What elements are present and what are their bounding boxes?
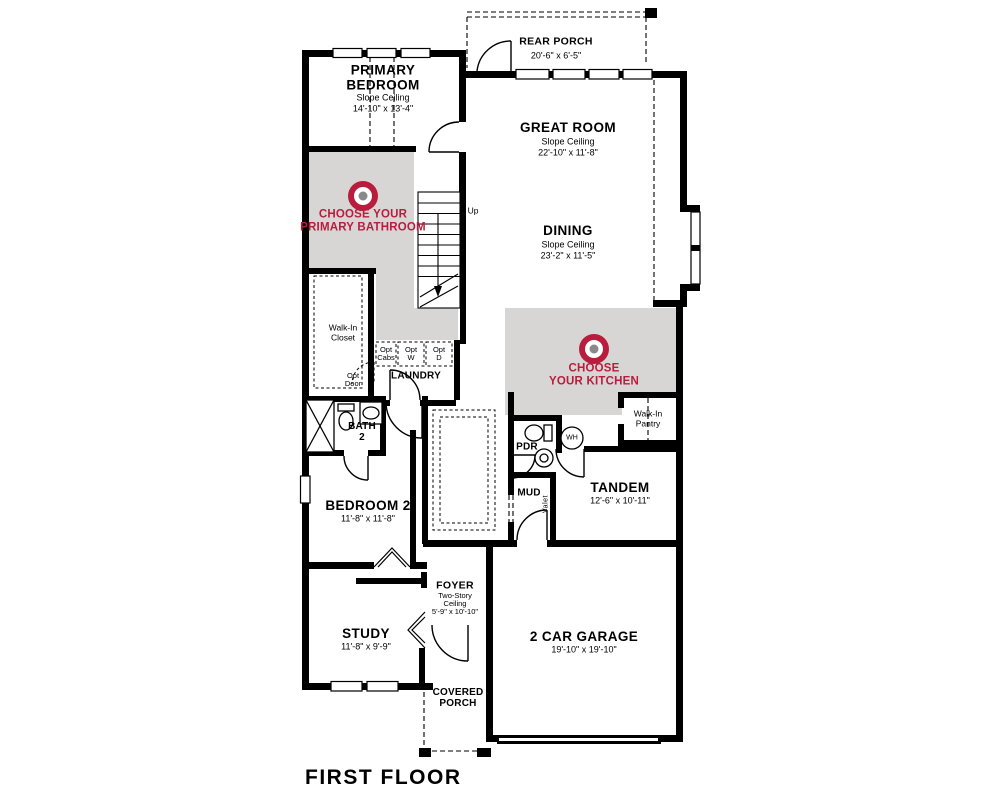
covered-porch-label: COVERED PORCH: [433, 687, 484, 709]
hall-door: [386, 402, 422, 438]
front-door: [432, 625, 468, 661]
opt-space-inner: [440, 417, 488, 523]
floor-plan: REAR PORCH 20'-6" x 6'-5" PRIMARY BEDROO…: [0, 0, 1000, 800]
kitchen-target-icon[interactable]: [579, 334, 609, 364]
opt-space-outer: [433, 410, 495, 530]
mud-label: MUD: [517, 488, 540, 499]
walk-in-pantry-label: Walk-In Pantry: [634, 410, 663, 429]
dining-ceiling: Slope Ceiling: [541, 240, 594, 251]
primary-bedroom-dims: 14'-10" x 13'-4": [353, 104, 413, 115]
sink-basin: [363, 407, 379, 419]
water-heater-label: WH: [566, 435, 578, 442]
valet-label: Valet: [543, 495, 550, 513]
tandem-label: TANDEM: [590, 481, 649, 496]
pdr-toilet-bowl: [525, 425, 543, 441]
pdr-toilet-tank: [544, 425, 552, 441]
garage-dims: 19'-10" x 19'-10": [551, 645, 616, 656]
primary-bath-target-icon[interactable]: [348, 181, 378, 211]
great-room-label: GREAT ROOM: [520, 121, 616, 136]
great-room-dims: 22'-10" x 11'-8": [538, 148, 598, 159]
floor-plan-drawing: [0, 0, 1000, 800]
opt-washer-label: Opt W: [405, 346, 417, 362]
study-label: STUDY: [342, 627, 390, 642]
primary-bedroom-door: [429, 122, 459, 152]
garage-entry-door: [517, 510, 547, 540]
laundry-label: LAUNDRY: [391, 371, 441, 382]
choose-primary-bathroom-option[interactable]: CHOOSE YOUR PRIMARY BATHROOM: [300, 209, 426, 234]
foyer-dims: 5'-9" x 10'-10": [432, 608, 478, 616]
garage-label: 2 CAR GARAGE: [530, 630, 638, 645]
bedroom2-door: [374, 548, 410, 567]
bedroom2-label: BEDROOM 2: [325, 499, 410, 514]
dining-dims: 23'-2" x 11'-5": [541, 251, 596, 262]
opt-dryer-label: Opt D: [433, 346, 445, 362]
pdr-sink-basin: [540, 454, 548, 462]
choose-kitchen-option[interactable]: CHOOSE YOUR KITCHEN: [549, 363, 639, 388]
pdr-label: PDR: [516, 442, 538, 453]
floor-title: FIRST FLOOR: [305, 766, 462, 790]
bath2-label: BATH 2: [348, 421, 376, 443]
great-room-ceiling: Slope Ceiling: [541, 137, 594, 148]
window-mullion: [691, 245, 700, 251]
dining-label: DINING: [543, 224, 593, 239]
bedroom2-dims: 11'-8" x 11'-8": [341, 514, 395, 525]
up-label: Up: [468, 206, 479, 216]
opt-cabs-label: Opt Cabs: [377, 346, 395, 362]
rear-porch-label: REAR PORCH: [519, 36, 593, 48]
opt-door-label: Opt Door: [345, 372, 361, 388]
tandem-door: [556, 449, 584, 477]
bath2-door: [344, 456, 368, 480]
tandem-dims: 12'-6" x 10'-11": [590, 496, 650, 507]
walk-in-closet-label: Walk-In Closet: [329, 324, 358, 343]
toilet-tank: [338, 404, 354, 411]
study-dims: 11'-8" x 9'-9": [341, 642, 391, 653]
rear-porch-door: [477, 41, 511, 71]
study-door: [408, 612, 425, 648]
primary-bedroom-label: PRIMARY BEDROOM: [346, 64, 419, 93]
rear-porch-dims: 20'-6" x 6'-5": [531, 51, 581, 62]
foyer-ceiling: Two-Story Ceiling: [438, 592, 472, 608]
primary-bath-highlight[interactable]: [308, 152, 458, 340]
primary-bedroom-ceiling: Slope Ceiling: [356, 93, 409, 104]
